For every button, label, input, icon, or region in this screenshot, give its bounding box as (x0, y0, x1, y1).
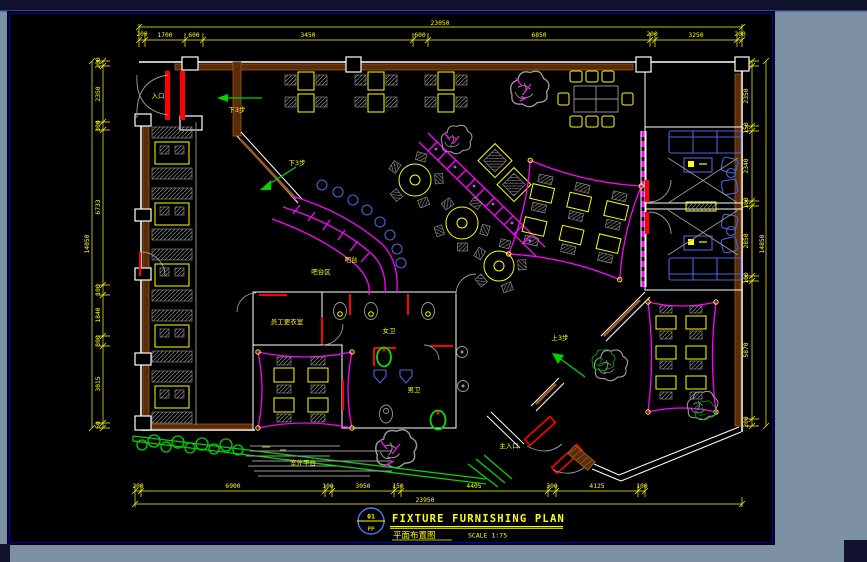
sheet-number-bottom: PP (367, 526, 375, 533)
label-bar-area: 吧台区 (311, 267, 331, 276)
dim-right-seg: 100 (743, 272, 750, 284)
dim-top-seg: 6850 (531, 32, 546, 39)
dim-top-seg: 200 (646, 31, 658, 38)
dim-bottom-seg: 4405 (466, 483, 481, 490)
dim-bottom-seg: 100 (322, 483, 334, 490)
dim-left-seg: 200 (95, 57, 102, 69)
dim-bottom-seg: 4125 (589, 483, 604, 490)
dim-right-total: 14850 (759, 234, 766, 253)
dim-right-seg: 150 (743, 122, 750, 134)
dim-bottom-seg: 100 (636, 483, 648, 490)
dim-left-seg: 100 (95, 284, 102, 296)
drawing-title-cn: 平面布置图 (393, 530, 436, 541)
dim-left-seg: 300 (95, 120, 102, 132)
label-down-steps-a: 下3步 (228, 106, 246, 114)
dim-left-seg: 50 (95, 421, 102, 429)
dim-left-seg: 300 (95, 335, 102, 347)
dim-left-seg: 3015 (95, 376, 102, 391)
cad-floor-plan-canvas: 23050 200 1700 600 3450 600 6850 200 325… (0, 0, 867, 562)
dim-top-total: 23050 (431, 20, 450, 27)
dim-right-seg: 5870 (743, 342, 750, 357)
dim-top-seg: 600 (414, 32, 426, 39)
dim-top-seg: 1700 (157, 32, 172, 39)
dim-left-seg: 2350 (95, 86, 102, 101)
dim-left-seg: 1840 (95, 307, 102, 322)
dim-bottom-seg: 6900 (225, 483, 240, 490)
label-main-entrance: 主入口 (499, 441, 519, 450)
dim-right-seg: 2350 (743, 88, 750, 103)
label-outdoor-deck: 室外平台 (290, 458, 316, 467)
dim-top-seg: 200 (734, 31, 746, 38)
dim-left-total: 14050 (84, 234, 91, 253)
corner-block-right (844, 540, 867, 562)
dim-top-seg: 3250 (688, 32, 703, 39)
dim-top-seg: 600 (188, 32, 200, 39)
dim-right-seg: 100 (743, 197, 750, 209)
corner-block-left (0, 544, 10, 562)
label-entrance: 入口 (152, 92, 165, 100)
dim-right-seg: 2850 (743, 233, 750, 248)
label-bar: 吧台 (345, 255, 358, 264)
drawing-scale: SCALE 1:75 (468, 532, 507, 540)
dim-bottom-seg: 3050 (355, 483, 370, 490)
sheet-number-top: 01 (367, 513, 375, 521)
dim-right-seg: 200 (743, 416, 750, 428)
dim-top-seg: 200 (136, 31, 148, 38)
dim-right-seg: 2340 (743, 158, 750, 173)
label-female-wc: 女卫 (383, 326, 397, 335)
dim-bottom-total: 23950 (416, 497, 435, 504)
vip-tv (686, 202, 716, 211)
dim-left-seg: 6733 (95, 199, 102, 214)
label-staff-room: 员工更衣室 (271, 317, 304, 326)
label-down-steps-b: 下3步 (288, 159, 306, 167)
label-male-wc: 男卫 (408, 386, 422, 394)
dim-bottom-seg: 200 (132, 483, 144, 490)
dim-bottom-seg: 300 (546, 483, 558, 490)
dim-bottom-seg: 150 (392, 483, 404, 490)
drawing-title-en: FIXTURE FURNISHING PLAN (392, 513, 565, 525)
dim-top-seg: 3450 (300, 32, 315, 39)
titlebar-strip (0, 0, 867, 11)
label-up-steps: 上3步 (551, 333, 569, 342)
